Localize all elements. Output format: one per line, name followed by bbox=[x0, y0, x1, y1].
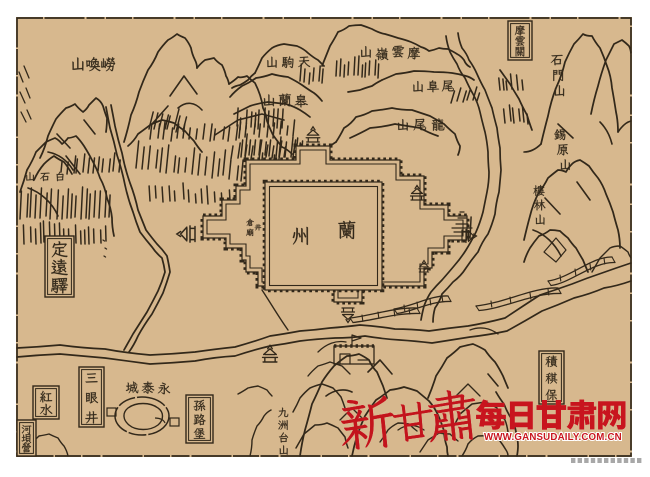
svg-text:WWW.GANSUDAILY.COM.CN: WWW.GANSUDAILY.COM.CN bbox=[484, 432, 622, 443]
